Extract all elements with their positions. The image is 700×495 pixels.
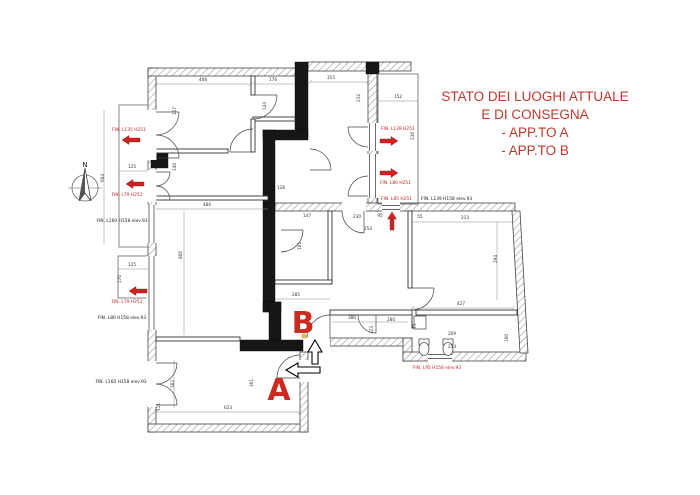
window-label: FIN. L80 H251 (380, 180, 411, 186)
north-compass: N (68, 161, 102, 201)
dimension-label: 140 (172, 163, 177, 171)
drawing-sheet: N B A 4081763151521571442322361281256044… (0, 0, 700, 495)
dimension-label: 176 (269, 77, 277, 82)
dimension-label: 214 (448, 344, 456, 349)
dimension-label: 254 (364, 226, 372, 231)
window-arrow-left-icon (126, 180, 144, 189)
title-block: STATO DEI LUOGHI ATTUALE E DI CONSEGNA -… (420, 88, 650, 160)
window-label: FIN. L135 H251 (112, 127, 146, 133)
dimension-label: 806 (178, 251, 183, 259)
dimension-label: 111 (156, 403, 161, 411)
window-label: FIN. L80 H158 elev.93 (98, 315, 146, 321)
dimension-label: 236 (410, 132, 415, 140)
window-openings (147, 110, 453, 407)
window-arrow-left-icon (122, 136, 140, 145)
window-label: FIN. L79 H251 (111, 192, 142, 198)
dimension-label: 101 (297, 242, 302, 250)
dimension-label: 486 (203, 202, 211, 207)
dimension-label: 280 (387, 317, 395, 322)
survey-marker (302, 334, 306, 338)
dimension-label: 157 (172, 107, 177, 115)
dimension-label: 147 (303, 213, 311, 218)
window-label: FIN. L85 H251 (381, 196, 412, 202)
dimension-label: 160 (504, 334, 509, 342)
pillar (366, 62, 379, 74)
dimension-label: 213 (461, 215, 469, 220)
dimension-label: 170 (117, 275, 122, 283)
balcony-left-upper (119, 105, 148, 247)
dimension-label: 232 (356, 94, 361, 102)
window-label: FIN. L95 H158 elev.93 (413, 365, 461, 371)
floor-plan-svg: N B A 4081763151521571442322361281256044… (0, 0, 700, 495)
dimension-label: 152 (394, 94, 402, 99)
dimension-label: 408 (199, 77, 207, 82)
window-arrow-right-icon (380, 169, 398, 178)
dimension-label: 323 (369, 326, 374, 334)
title-line-3: - APP.TO A (420, 124, 650, 142)
dimension-label: 315 (327, 75, 335, 80)
dimension-label: 209 (448, 331, 456, 336)
title-line-4: - APP.TO B (420, 142, 650, 160)
window-label: FIN. L139 H251 (381, 126, 415, 132)
dimension-label: 75 (412, 323, 417, 329)
title-line-2: E DI CONSEGNA (420, 106, 650, 124)
wc-icon (419, 343, 429, 356)
window-label: FIN. L160 H158 elev.93 (95, 379, 146, 385)
dimension-label: 230 (353, 214, 361, 219)
window-arrow-up-icon (388, 212, 397, 230)
north-label: N (82, 161, 87, 169)
window-arrow-left-icon (129, 287, 147, 296)
dimension-label: 382 (170, 380, 175, 388)
title-line-1: STATO DEI LUOGHI ATTUALE (420, 88, 650, 106)
dimension-label: 361 (249, 379, 254, 387)
window-label: FIN. L139 H158 elev.93 (421, 196, 472, 202)
dimension-label: 294 (493, 255, 498, 263)
dimension-label: 125 (128, 262, 136, 267)
dimension-label: 95 (377, 213, 383, 218)
dimension-label: 55 (417, 214, 423, 219)
dimension-label: 144 (262, 102, 267, 110)
dimension-label: 604 (100, 174, 105, 182)
dimension-label: 285 (292, 292, 300, 297)
window-arrow-right-icon (380, 137, 398, 146)
dimension-label: 125 (128, 164, 136, 169)
window-label: FIN. L79 H251 (111, 299, 142, 305)
dimension-label: 623 (224, 405, 232, 410)
window-label: FIN. L160 H158 elev.93 (96, 218, 147, 224)
apartment-a-label: A (267, 373, 291, 408)
dimension-label: 380 (348, 315, 356, 320)
dimension-label: 427 (457, 301, 465, 306)
dimension-label: 128 (277, 185, 285, 190)
